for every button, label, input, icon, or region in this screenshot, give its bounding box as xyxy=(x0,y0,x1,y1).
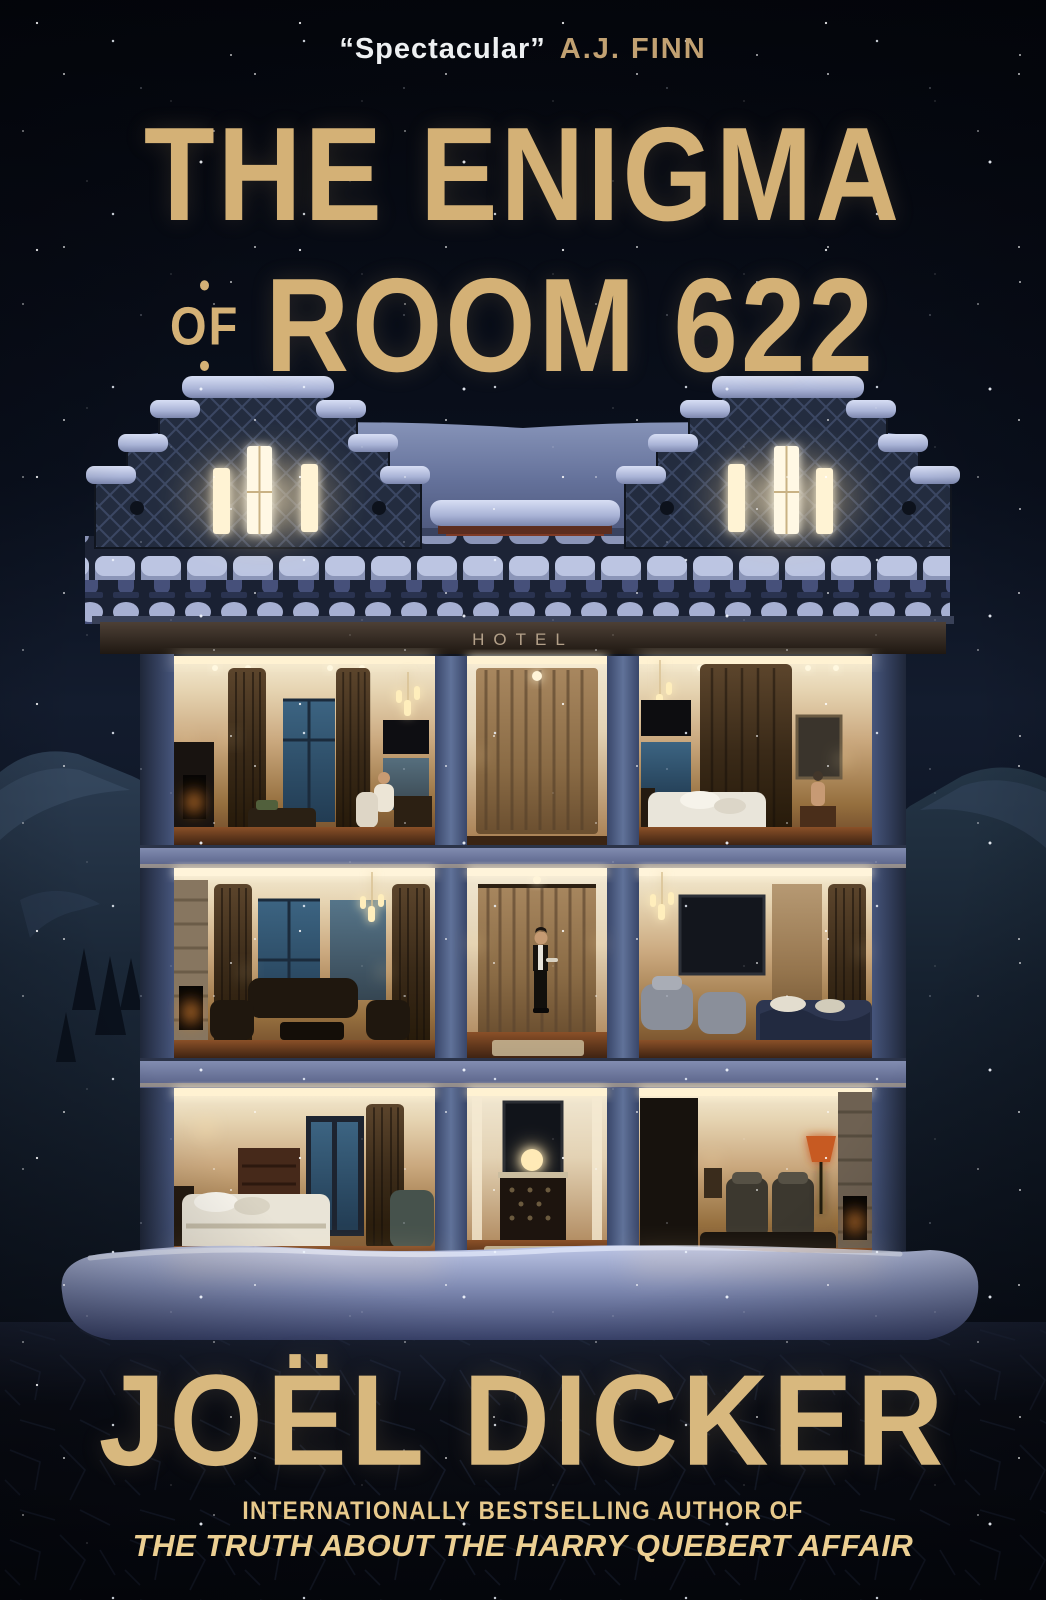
console-cabinet xyxy=(498,1172,568,1240)
stone-chimney xyxy=(838,1092,872,1262)
of-ornament: OF xyxy=(170,280,239,371)
stone-fireplace xyxy=(174,880,208,1058)
footer-kicker: INTERNATIONALLY BESTSELLING AUTHOR OF xyxy=(52,1497,993,1526)
hotel-building: HOTEL xyxy=(85,376,960,1262)
quote-text: “Spectacular” xyxy=(339,33,545,65)
book-title-line1: THE ENIGMA xyxy=(0,97,1046,251)
room-bottom-center lobby xyxy=(467,1088,607,1262)
title-room-number: ROOM 622 xyxy=(265,248,876,402)
room-top-center xyxy=(467,656,607,845)
column-right xyxy=(607,656,639,1262)
footer-work-title: THE TRUTH ABOUT THE HARRY QUEBERT AFFAIR xyxy=(0,1528,1046,1564)
rug xyxy=(492,1040,584,1056)
author-name: JOËL DICKER xyxy=(0,1346,1046,1495)
floor-slab xyxy=(140,1058,906,1088)
ornament-dot-top xyxy=(200,280,209,290)
room-bottom-left xyxy=(174,1088,435,1262)
quote-attribution: A.J. FINN xyxy=(560,33,707,65)
teal-chair xyxy=(390,1190,434,1248)
review-quote: “Spectacular”A.J. FINN xyxy=(0,33,1046,66)
outer-wall-right xyxy=(872,654,906,1262)
hotel-sign: HOTEL xyxy=(92,616,954,654)
outer-wall-left xyxy=(140,654,174,1262)
book-title-line2: OF ROOM 622 xyxy=(0,248,1046,402)
room-top-right xyxy=(639,656,872,845)
room-bottom-right xyxy=(639,1088,872,1262)
room-mid-left xyxy=(174,868,435,1058)
wall-lamp xyxy=(197,1119,215,1137)
right-gable xyxy=(616,376,960,556)
snow-ledge xyxy=(62,1245,979,1340)
column-left xyxy=(435,656,467,1262)
title-of: OF xyxy=(170,298,239,352)
floor-slab xyxy=(140,845,906,868)
bed-white xyxy=(174,1186,330,1256)
roof-snow-ridge-cap xyxy=(430,500,620,526)
hotel-sign-text: HOTEL xyxy=(472,630,574,649)
room-top-left xyxy=(174,656,435,845)
book-cover: HOTEL xyxy=(0,0,1046,1600)
room-mid-center corridor xyxy=(467,868,607,1058)
room-mid-right xyxy=(639,868,872,1058)
wall-art xyxy=(680,896,764,974)
wardrobe xyxy=(640,1098,698,1250)
ornament-dot-bottom xyxy=(200,360,209,370)
left-gable xyxy=(86,376,430,556)
